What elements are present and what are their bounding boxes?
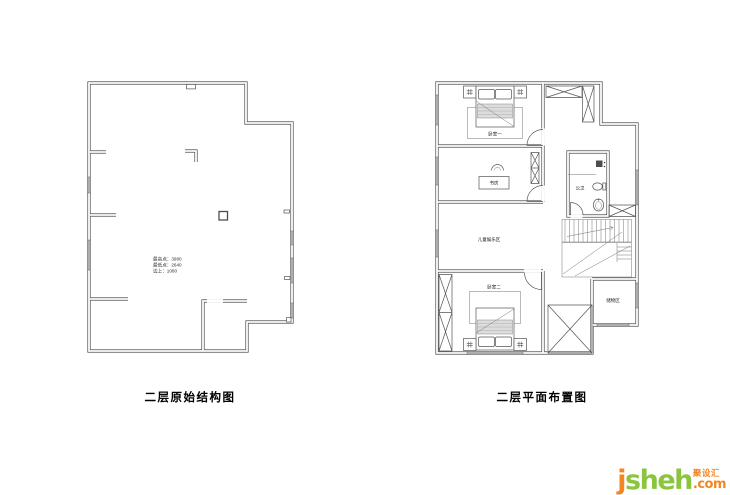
left-plan-windows [87, 177, 293, 318]
right-plan-walls [437, 83, 637, 353]
door-frame-mark [284, 210, 290, 213]
bedroom1-furniture: 卧室一 [464, 86, 527, 139]
nightstand [514, 339, 527, 351]
right-plan-windows [435, 95, 638, 355]
pillow [479, 90, 495, 100]
left-plan-caption: 二层原始结构图 [145, 390, 236, 404]
bathroom-door [571, 202, 584, 215]
kids-area-label: 儿童娱乐区 [478, 236, 501, 243]
corner-mark [287, 318, 292, 323]
floor-plan-page: 最高点：3980 最低点：2640 边上：1080 二层原始结构图 [0, 0, 730, 495]
study-door [527, 186, 543, 202]
left-plan-details [187, 84, 292, 322]
toilet-icon [593, 183, 603, 190]
bathroom-label: 公卫 [576, 186, 585, 191]
folding-closet-door [531, 153, 539, 184]
wardrobe-top [546, 86, 594, 122]
stair-room-opening [207, 299, 223, 302]
void-x-box [548, 305, 592, 353]
nightstand [464, 339, 477, 351]
left-plan: 最高点：3980 最低点：2640 边上：1080 二层原始结构图 [87, 83, 293, 404]
watermark-brand-j: j [617, 465, 625, 495]
bedroom2-door [525, 273, 542, 290]
study-label: 书房 [490, 180, 499, 187]
annotation-line-1: 最高点：3980 [153, 256, 182, 263]
top-wall-notch [187, 84, 196, 89]
corridor-cabinet [609, 205, 636, 217]
wardrobe [439, 275, 452, 352]
jsheh-watermark: jsheh 聚设汇 .com [610, 450, 726, 492]
column [219, 212, 228, 221]
stair-landing [562, 243, 632, 278]
staircase [562, 220, 632, 278]
shower-icon [596, 161, 603, 168]
bedroom2-door-opening [524, 269, 541, 272]
nightstand [514, 86, 527, 98]
study-furniture: 书房 [479, 153, 539, 190]
right-plan: 卧室一 书房 儿童娱乐区 公卫 [435, 83, 638, 404]
right-plan-caption: 二层平面布置图 [497, 390, 588, 404]
bedroom2-furniture: 卧室二 [439, 275, 527, 352]
pillow [496, 337, 512, 347]
watermark-brand: jsheh [617, 470, 692, 492]
stair-lower-treads [617, 243, 632, 262]
storage-label: 储物区 [606, 297, 620, 304]
bedroom2-label: 卧室二 [487, 284, 501, 291]
bathroom-fixtures: 公卫 [568, 161, 606, 212]
bedroom1-door-opening [541, 129, 544, 146]
left-plan-annotation: 最高点：3980 最低点：2640 边上：1080 [153, 256, 182, 275]
pillow [479, 337, 495, 347]
door-frame-mark [285, 277, 291, 280]
nightstand [464, 86, 477, 98]
annotation-line-2: 最低点：2640 [153, 262, 182, 269]
pillow [496, 90, 512, 100]
annotation-line-3: 边上：1080 [153, 268, 177, 275]
bedroom1-door [527, 130, 543, 146]
watermark-domain-suffix: .com [693, 479, 726, 491]
left-plan-walls [89, 83, 292, 351]
bedroom1-label: 卧室一 [488, 131, 502, 138]
bathroom-door-opening [571, 214, 583, 217]
floor-plans-canvas: 最高点：3980 最低点：2640 边上：1080 二层原始结构图 [0, 0, 730, 495]
study-door-opening [541, 186, 544, 202]
watermark-brand-sheh: sheh [625, 465, 692, 495]
